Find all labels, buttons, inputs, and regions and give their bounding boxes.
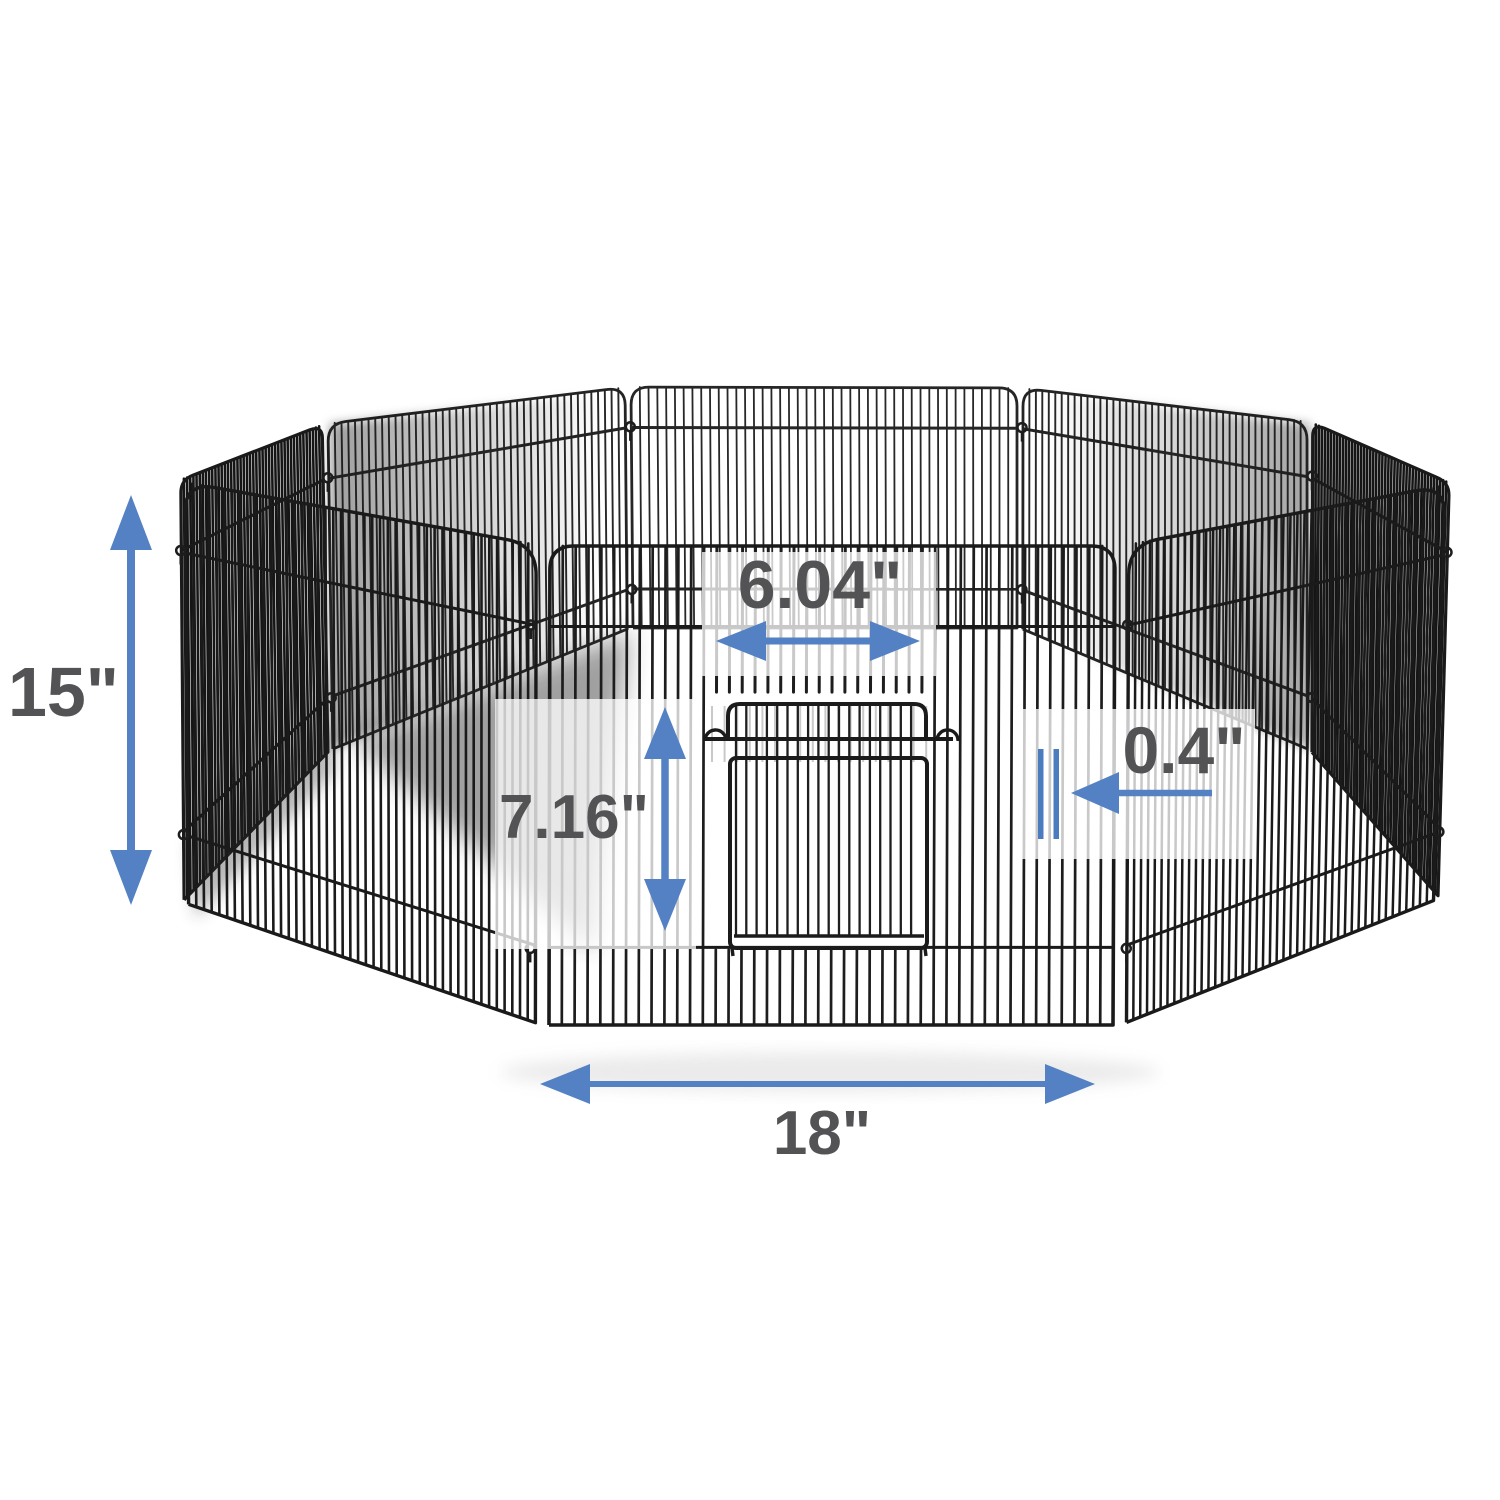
- svg-text:6.04": 6.04": [738, 547, 903, 623]
- svg-text:18": 18": [773, 1099, 871, 1168]
- svg-text:7.16": 7.16": [499, 783, 649, 852]
- svg-text:15": 15": [8, 653, 119, 731]
- svg-text:0.4": 0.4": [1122, 713, 1245, 787]
